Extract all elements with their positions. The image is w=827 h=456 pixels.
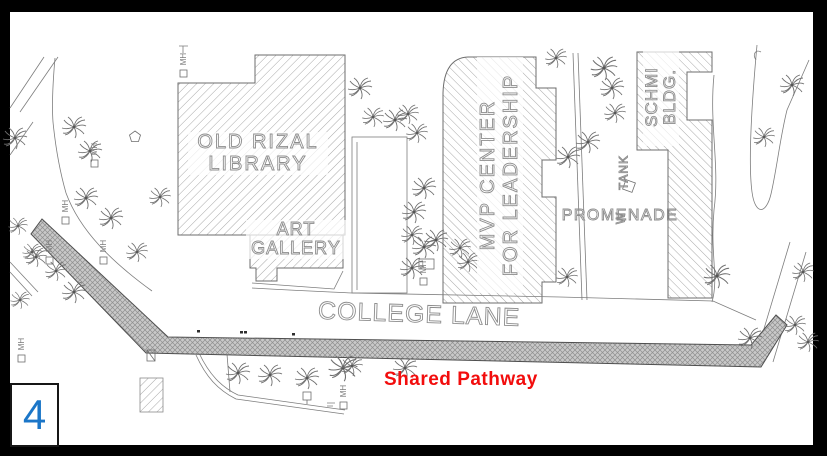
lane-dot <box>292 333 295 336</box>
manhole-label: MH <box>45 238 55 254</box>
lane-dot <box>197 330 200 333</box>
page-number: 4 <box>23 391 46 439</box>
page-number-badge: 4 <box>10 383 59 447</box>
gallery-label-line1: ART <box>246 220 346 239</box>
mvp-label-line2: FOR LEADERSHIP <box>500 57 523 293</box>
lane-dot <box>244 331 247 334</box>
mvp-label-line1: MVP CENTER <box>477 57 500 293</box>
art-gallery-label: ART GALLERY <box>246 220 346 259</box>
manhole-label: MH <box>61 198 71 214</box>
shared-pathway-label: Shared Pathway <box>384 369 538 391</box>
schmi-label-line1: SCHMI <box>643 48 661 146</box>
manhole-label: MH <box>90 141 100 157</box>
library-label-line1: OLD RIZAL <box>188 132 328 154</box>
manhole-label: MH <box>179 51 189 67</box>
water-tank-w-label: W <box>615 209 628 227</box>
site-plan-page: OLD RIZAL LIBRARY ART GALLERY MVP CENTER… <box>0 0 827 456</box>
lane-dot <box>240 331 243 334</box>
manhole-label: MH <box>99 238 109 254</box>
library-label-line2: LIBRARY <box>188 154 328 176</box>
manhole-label: MH <box>17 336 27 352</box>
schmi-label-line2: BLDG. <box>661 48 679 146</box>
old-rizal-library-label: OLD RIZAL LIBRARY <box>188 132 328 175</box>
schmi-bldg-label: SCHMI BLDG. <box>643 48 679 146</box>
manhole-label: MH <box>419 259 429 275</box>
mvp-center-label: MVP CENTER FOR LEADERSHIP <box>477 57 523 293</box>
manhole-label: MH <box>339 383 349 399</box>
small-hatched-structure <box>140 378 163 412</box>
gallery-label-line2: GALLERY <box>246 239 346 258</box>
water-tank-label: TANK <box>618 148 631 196</box>
